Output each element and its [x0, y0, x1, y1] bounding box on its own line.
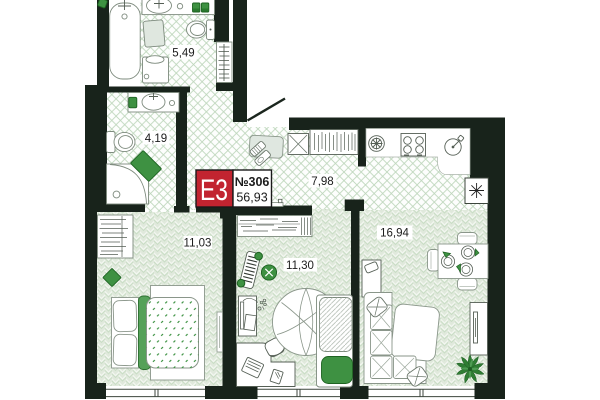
svg-text:5,49: 5,49: [172, 47, 194, 59]
svg-text:№306: №306: [235, 175, 270, 189]
svg-text:4,19: 4,19: [145, 133, 167, 145]
svg-text:7,98: 7,98: [311, 176, 333, 188]
svg-text:11,30: 11,30: [286, 260, 314, 272]
svg-text:11,03: 11,03: [184, 237, 212, 249]
svg-text:16,94: 16,94: [380, 227, 409, 239]
svg-text:E3: E3: [200, 174, 228, 207]
svg-text:56,93: 56,93: [236, 191, 267, 205]
